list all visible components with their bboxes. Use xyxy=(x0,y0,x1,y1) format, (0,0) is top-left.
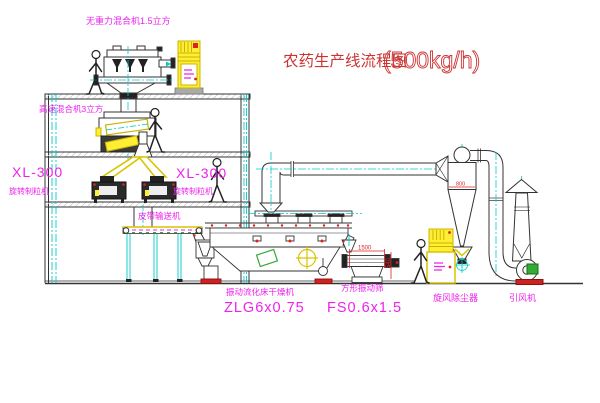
dim-cyclone-inlet: 800 xyxy=(456,182,465,188)
y-chute xyxy=(102,157,166,177)
exhaust-duct xyxy=(256,152,448,212)
label-granulator-right-name: 旋转制粒机 xyxy=(173,186,213,196)
discharge-target-icon xyxy=(454,257,470,273)
dim-screen-length: 1500 xyxy=(358,246,372,252)
label-high-speed-mixer: 高速混合机3立方 xyxy=(39,104,103,114)
label-dryer-name: 振动流化床干燥机 xyxy=(226,287,295,297)
page-title-capacity: (500kg/h) xyxy=(383,47,480,73)
discharge-neck xyxy=(139,132,147,144)
label-granulator-left-model: XL-300 xyxy=(12,164,63,180)
control-cabinet-bottom xyxy=(427,229,455,283)
induced-draft-fan xyxy=(516,260,543,285)
granulator-left xyxy=(92,176,126,203)
control-cabinet-top xyxy=(175,41,203,94)
worker-figure xyxy=(87,51,105,95)
dim-screen-height: 540 xyxy=(386,257,392,268)
mixer-down-duct xyxy=(121,99,136,112)
label-cyclone: 旋风除尘器 xyxy=(433,292,478,303)
label-granulator-left-name: 旋转制粒机 xyxy=(9,186,49,196)
cyclone-separator: 800 xyxy=(448,144,516,281)
label-gravity-mixer: 无重力混合机1.5立方 xyxy=(86,15,171,26)
cad-flow-diagram: 1500 540 800 xyxy=(0,0,600,403)
dryer-ports xyxy=(264,214,344,223)
vibrating-screen: 1500 540 xyxy=(342,234,399,283)
label-belt-conveyor: 皮带输送机 xyxy=(138,211,181,221)
rain-cap xyxy=(506,180,537,193)
granulator-right xyxy=(142,176,176,203)
label-granulator-right-model: XL-300 xyxy=(176,165,227,181)
label-fan: 引风机 xyxy=(509,292,536,303)
fluid-bed-dryer xyxy=(196,211,362,284)
label-dryer-model: ZLG6x0.75 xyxy=(224,300,305,316)
label-screen-model: FS0.6x1.5 xyxy=(327,300,402,316)
deck-rivets xyxy=(211,224,349,226)
conveyor-legs xyxy=(127,234,181,281)
mixer-nozzles xyxy=(112,59,148,72)
high-speed-mixer xyxy=(96,112,156,157)
label-screen-name: 方形振动筛 xyxy=(341,283,384,293)
